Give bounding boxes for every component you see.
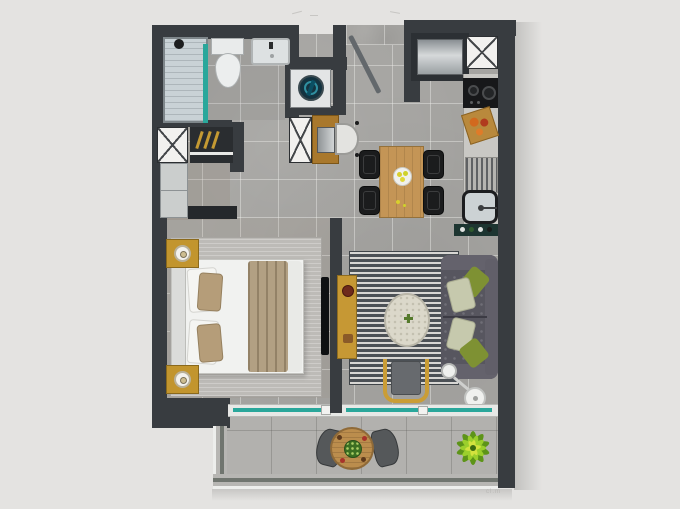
duvet-fold [288, 261, 302, 372]
pillow-tan [197, 272, 224, 312]
headboard [172, 260, 186, 373]
watermark: cl.m [486, 489, 520, 499]
dining-chair [359, 150, 380, 179]
floor-plan-canvas: cl.m [0, 0, 680, 509]
dimension-marks [290, 10, 410, 20]
shower-glass [203, 44, 208, 123]
table-lamp-icon [174, 371, 191, 388]
duct-shaft-dressing [157, 127, 188, 163]
washer-drum-icon [298, 75, 324, 101]
table-crumbs [396, 200, 410, 210]
dressing-cabinet [160, 163, 188, 218]
armchair-seat [391, 361, 421, 395]
sliding-glass-panel [346, 408, 418, 412]
dressing-dresser [188, 206, 237, 219]
door-handle [418, 406, 428, 415]
drying-rack [465, 157, 498, 193]
dining-chair [359, 186, 380, 215]
wardrobe-track [190, 152, 233, 155]
double-bed [171, 259, 304, 374]
drain-icon [270, 54, 274, 58]
washing-machine [290, 69, 331, 108]
nightstand [166, 365, 199, 394]
bottle-shelf [454, 224, 498, 236]
laundry-tall-cabinet [289, 117, 312, 163]
laptop-icon [317, 127, 335, 153]
faucet-icon [269, 42, 273, 49]
wall-slider-mid-stub [330, 402, 342, 413]
wardrobe-hanging-rod [190, 127, 233, 163]
blanket [248, 261, 288, 372]
table-lamp-icon [174, 245, 191, 262]
sliding-glass-panel [233, 408, 321, 412]
plant-sprig-icon [407, 314, 410, 323]
table-plant-icon [344, 440, 362, 458]
kitchen-sink [462, 190, 498, 224]
dining-chair [423, 150, 444, 179]
wall-right [498, 20, 515, 488]
bowl-icon [342, 285, 354, 297]
pillow-tan [196, 323, 223, 363]
railing-bottom [213, 474, 498, 489]
cooktop [463, 78, 498, 108]
fridge [417, 39, 463, 75]
burner-icon [468, 85, 479, 96]
console-table [337, 275, 357, 359]
armchair [383, 359, 429, 403]
potted-plant-icon [446, 421, 500, 475]
fruit-plate [393, 167, 412, 186]
bathroom-sink [251, 38, 290, 65]
shadow-bottom [212, 489, 512, 501]
wall-bedroom-bottom [152, 398, 230, 428]
wall-entry-stub [333, 25, 346, 69]
dining-chair [423, 186, 444, 215]
shower [163, 37, 208, 123]
arc-floor-lamp [438, 360, 488, 410]
shower-head-icon [174, 39, 184, 49]
nightstand [166, 239, 199, 268]
shadow-right [514, 22, 542, 490]
burner-icon [482, 86, 496, 100]
coffee-table [384, 293, 430, 347]
sliding-glass-panel [428, 408, 492, 412]
sofa-seat-gap [443, 316, 487, 318]
wall-mounted-tv [321, 277, 329, 355]
bistro-table [330, 427, 374, 470]
duct-shaft-kitchen [466, 36, 498, 69]
